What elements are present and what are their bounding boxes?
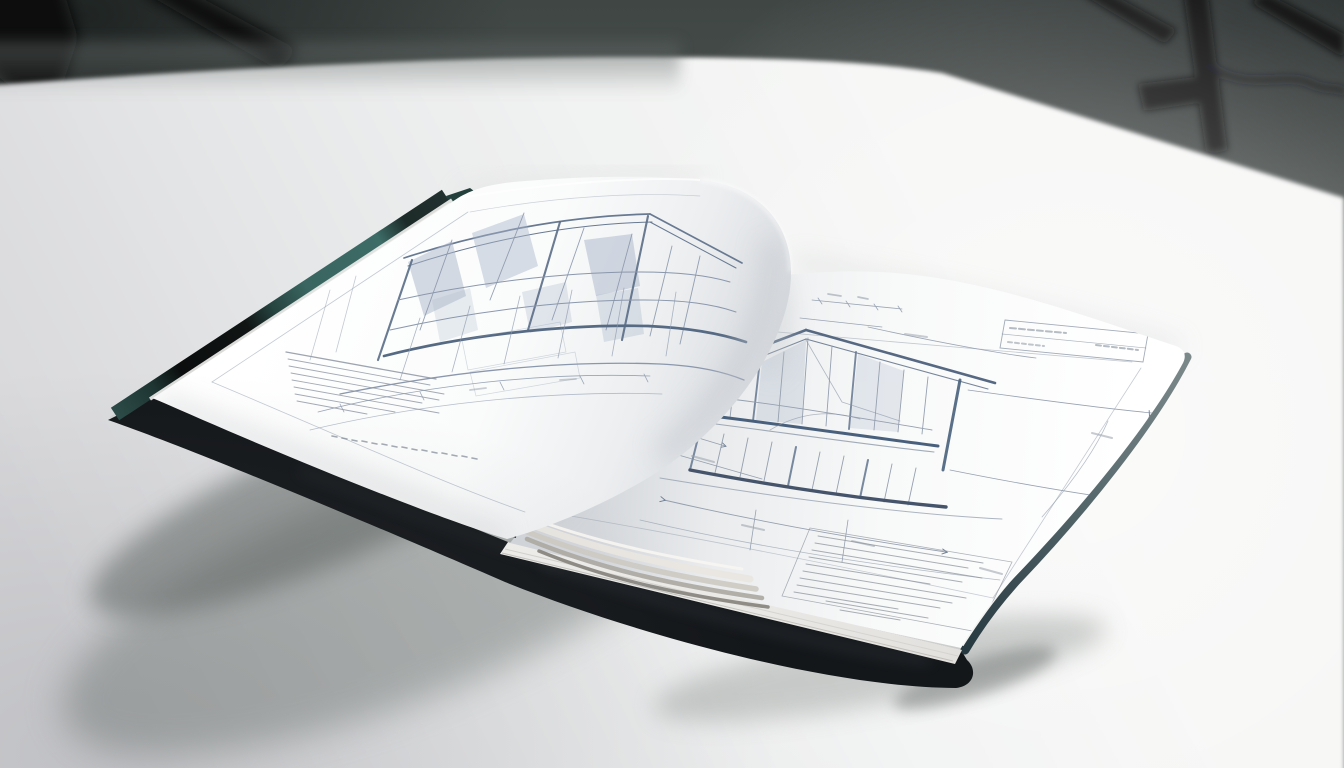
vignette-bottom-left [0, 0, 1344, 768]
photo-canvas [0, 0, 1344, 768]
studio-photograph [0, 0, 1344, 768]
vignette [0, 0, 1344, 768]
